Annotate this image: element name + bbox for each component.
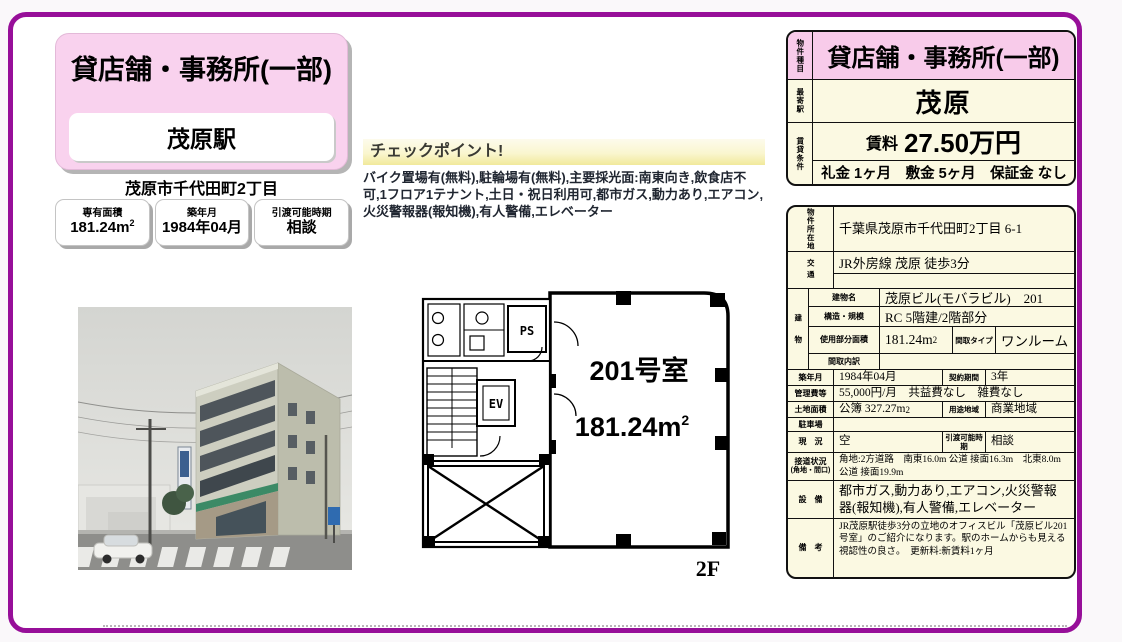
rent-line: 賃料 27.50万円 — [813, 123, 1074, 161]
layout-type-value: ワンルーム — [996, 327, 1074, 353]
contract-value: 3年 — [986, 370, 1074, 385]
road-label: 接道状況 (角地・間口) — [788, 453, 834, 480]
summary-label: 築年月 — [187, 208, 217, 219]
zoning-value: 商業地域 — [986, 402, 1074, 417]
layout-detail-value — [880, 354, 1074, 369]
ps-label: PS — [520, 324, 534, 338]
row-access: 交通 JR外房線 茂原 徒歩3分 — [788, 252, 1074, 289]
land-value: 公簿 327.27m2 — [834, 402, 942, 417]
ev-label: EV — [489, 397, 503, 411]
access-label: 交通 — [788, 252, 834, 288]
status-label: 現 況 — [788, 432, 834, 452]
building-group-label-cell: 建物 — [788, 289, 809, 369]
zoning-label: 用途地域 — [942, 402, 986, 417]
built-value: 1984年04月 — [834, 370, 942, 385]
land-label: 土地面積 — [788, 402, 834, 417]
row-built: 築年月 1984年04月 契約期間 3年 — [788, 370, 1074, 386]
layout-type-label: 間取タイプ — [952, 327, 996, 353]
structure-value: RC 5階建/2階部分 — [880, 307, 1074, 326]
row-building-name: 建物名 茂原ビル(モバラビル) 201 — [809, 289, 1074, 307]
parking-label: 駐車場 — [788, 418, 834, 431]
parking-value — [834, 418, 1074, 431]
floor-level-label: 2F — [696, 556, 720, 581]
contract-label: 契約期間 — [942, 370, 986, 385]
row-location: 物件所在地 千葉県茂原市千代田町2丁目 6-1 — [788, 207, 1074, 252]
room-number-label: 201号室 — [589, 355, 688, 386]
row-structure: 構造・規模 RC 5階建/2階部分 — [809, 307, 1074, 327]
equipment-label: 設 備 — [788, 481, 834, 518]
summary-boxes: 専有面積 181.24m2 築年月 1984年04月 引渡可能時期 相談 — [55, 199, 349, 246]
notes-label: 備 考 — [788, 519, 834, 577]
property-flyer-page: 貸店舗・事務所(一部) 茂原駅 茂原市千代田町2丁目 専有面積 181.24m2… — [0, 0, 1122, 642]
head-station-label-cell: 最寄駅 — [788, 80, 813, 122]
row-land: 土地面積 公簿 327.27m2 用途地域 商業地域 — [788, 402, 1074, 418]
summary-value: 181.24m2 — [70, 219, 134, 238]
summary-box-built: 築年月 1984年04月 — [155, 199, 250, 246]
location-value: 千葉県茂原市千代田町2丁目 6-1 — [834, 207, 1074, 251]
floor-plan: PS EV — [418, 288, 744, 588]
access-value-empty — [834, 274, 1074, 288]
head-table: 物件種目 貸店舗・事務所(一部) 最寄駅 茂原 賃貸条件 賃料 27.50万円 … — [786, 30, 1076, 186]
property-address: 茂原市千代田町2丁目 — [55, 175, 348, 199]
handover-value: 相談 — [986, 432, 1074, 452]
building-name-label: 建物名 — [809, 289, 880, 306]
room-area-label: 181.24m2 — [575, 412, 690, 442]
summary-box-handover: 引渡可能時期 相談 — [254, 199, 349, 246]
detail-table: 物件所在地 千葉県茂原市千代田町2丁目 6-1 交通 JR外房線 茂原 徒歩3分… — [786, 205, 1076, 579]
row-used-area: 使用部分面積 181.24m2 間取タイプ ワンルーム — [809, 327, 1074, 354]
summary-box-area: 専有面積 181.24m2 — [55, 199, 150, 246]
row-road: 接道状況 (角地・間口) 角地:2方道路 南東16.0m 公道 接面16.3m … — [788, 453, 1074, 481]
equipment-value: 都市ガス,動力あり,エアコン,火災警報器(報知機),有人警備,エレベーター — [834, 481, 1074, 518]
road-value: 角地:2方道路 南東16.0m 公道 接面16.3m 北東8.0m 公道 接面1… — [834, 453, 1074, 480]
building-name-value: 茂原ビル(モバラビル) 201 — [880, 289, 1074, 306]
building-photo-illustration — [78, 307, 352, 570]
head-type-value: 貸店舗・事務所(一部) — [813, 32, 1074, 79]
management-value: 55,000円/月 共益費なし 雑費なし — [834, 386, 1074, 401]
building-group: 建物 建物名 茂原ビル(モバラビル) 201 構造・規模 RC 5階建/2階部分… — [788, 289, 1074, 370]
head-station-value: 茂原 — [813, 80, 1074, 122]
head-row-terms: 賃貸条件 賃料 27.50万円 礼金 1ヶ月 敷金 5ヶ月 保証金 なし — [788, 123, 1074, 184]
checkpoint-section: チェックポイント! バイク置場有(無料),駐輪場有(無料),主要採光面:南東向き… — [363, 139, 765, 221]
fees-line: 礼金 1ヶ月 敷金 5ヶ月 保証金 なし — [813, 161, 1074, 184]
station-name-box: 茂原駅 — [69, 113, 334, 161]
property-type-title: 貸店舗・事務所(一部) — [56, 48, 347, 87]
rent-label: 賃料 — [866, 130, 898, 154]
flyer-border-board: 貸店舗・事務所(一部) 茂原駅 茂原市千代田町2丁目 専有面積 181.24m2… — [8, 12, 1082, 633]
handover-label: 引渡可能時期 — [942, 432, 986, 452]
used-area-value: 181.24m2 — [880, 327, 952, 353]
row-status: 現 況 空 引渡可能時期 相談 — [788, 432, 1074, 453]
building-photo — [78, 307, 352, 570]
built-label: 築年月 — [788, 370, 834, 385]
status-value: 空 — [834, 432, 942, 452]
head-terms-label-cell: 賃貸条件 — [788, 123, 813, 184]
row-parking: 駐車場 — [788, 418, 1074, 432]
floor-plan-drawing: PS EV — [418, 288, 744, 588]
notes-value: JR茂原駅徒歩3分の立地のオフィスビル「茂原ビル201号室」のご紹介になります。… — [834, 519, 1074, 577]
summary-label: 専有面積 — [82, 208, 122, 219]
title-card: 貸店舗・事務所(一部) 茂原駅 — [55, 33, 348, 170]
summary-label: 引渡可能時期 — [272, 208, 332, 219]
structure-label: 構造・規模 — [809, 307, 880, 326]
checkpoint-body: バイク置場有(無料),駐輪場有(無料),主要採光面:南東向き,飲食店不可,1フロ… — [363, 170, 765, 221]
location-label: 物件所在地 — [788, 207, 834, 251]
row-layout-detail: 間取内訳 — [809, 354, 1074, 369]
management-label: 管理費等 — [788, 386, 834, 401]
row-management: 管理費等 55,000円/月 共益費なし 雑費なし — [788, 386, 1074, 402]
head-type-label-cell: 物件種目 — [788, 32, 813, 79]
used-area-label: 使用部分面積 — [809, 327, 880, 353]
access-value: JR外房線 茂原 徒歩3分 — [834, 252, 1074, 274]
head-row-station: 最寄駅 茂原 — [788, 80, 1074, 123]
checkpoint-title: チェックポイント! — [363, 139, 765, 165]
summary-value: 1984年04月 — [162, 219, 242, 238]
layout-detail-label: 間取内訳 — [809, 354, 880, 369]
head-row-type: 物件種目 貸店舗・事務所(一部) — [788, 32, 1074, 80]
rent-value: 27.50万円 — [904, 123, 1021, 160]
row-equipment: 設 備 都市ガス,動力あり,エアコン,火災警報器(報知機),有人警備,エレベータ… — [788, 481, 1074, 519]
scan-artifact-line — [103, 625, 1067, 627]
row-notes: 備 考 JR茂原駅徒歩3分の立地のオフィスビル「茂原ビル201号室」のご紹介にな… — [788, 519, 1074, 577]
summary-value: 相談 — [287, 219, 317, 238]
